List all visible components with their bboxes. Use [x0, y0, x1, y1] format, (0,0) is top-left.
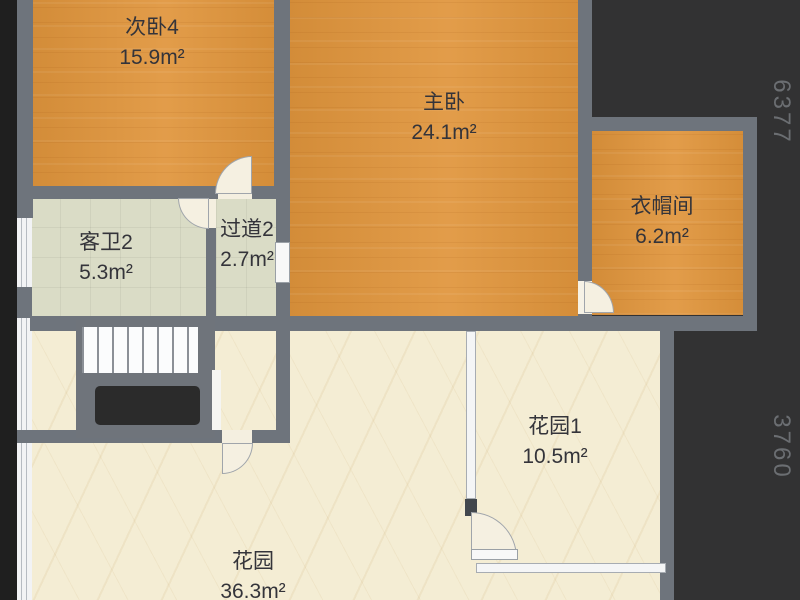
- room-area: 10.5m²: [522, 442, 587, 472]
- room-area: 15.9m²: [119, 43, 184, 73]
- stair-void: [95, 386, 200, 425]
- doorway-garden-vestibule: [222, 430, 252, 443]
- stair-side-opening: [212, 370, 221, 430]
- room-area: 24.1m²: [411, 118, 476, 148]
- room-name: 主卧: [411, 88, 476, 118]
- room-area: 2.7m²: [220, 245, 274, 275]
- label-hallway2: 过道2 2.7m²: [220, 215, 274, 275]
- stair-treads: [82, 327, 198, 373]
- dimension-right-upper: 6377: [767, 79, 795, 144]
- wall-vestibule-right: [276, 331, 290, 443]
- garden-partition-horizontal: [476, 563, 666, 573]
- label-garden: 花园 36.3m²: [220, 547, 285, 600]
- left-dark-edge: [0, 0, 17, 600]
- label-garden1: 花园1 10.5m²: [522, 412, 587, 472]
- room-name: 花园1: [522, 412, 587, 442]
- wall-garden-right: [660, 331, 674, 600]
- label-cloakroom: 衣帽间 6.2m²: [631, 192, 694, 252]
- garden-partition-vertical: [466, 331, 476, 499]
- room-name: 花园: [220, 547, 285, 577]
- wall-left-block: [17, 287, 32, 318]
- room-area: 36.3m²: [220, 577, 285, 600]
- room-area: 6.2m²: [631, 222, 694, 252]
- wall-cloakroom-right: [743, 117, 757, 331]
- room-master-bedroom-floor: [290, 0, 578, 318]
- room-name: 次卧4: [119, 13, 184, 43]
- dimension-right-lower: 3760: [767, 414, 795, 479]
- room-name: 过道2: [220, 215, 274, 245]
- label-bathroom2: 客卫2 5.3m²: [79, 228, 133, 288]
- garden-door-leaf: [471, 549, 518, 560]
- master-hallway-door-leaf: [275, 242, 290, 283]
- room-name: 客卫2: [79, 228, 133, 258]
- label-bedroom4: 次卧4 15.9m²: [119, 13, 184, 73]
- label-master-bedroom: 主卧 24.1m²: [411, 88, 476, 148]
- room-area: 5.3m²: [79, 258, 133, 288]
- wall-cloakroom-top: [592, 117, 757, 131]
- room-name: 衣帽间: [631, 192, 694, 222]
- left-window: [17, 218, 32, 600]
- floor-plan: 次卧4 15.9m² 主卧 24.1m² 衣帽间 6.2m² 客卫2 5.3m²…: [0, 0, 800, 600]
- wall-bedroom4-master: [274, 0, 290, 199]
